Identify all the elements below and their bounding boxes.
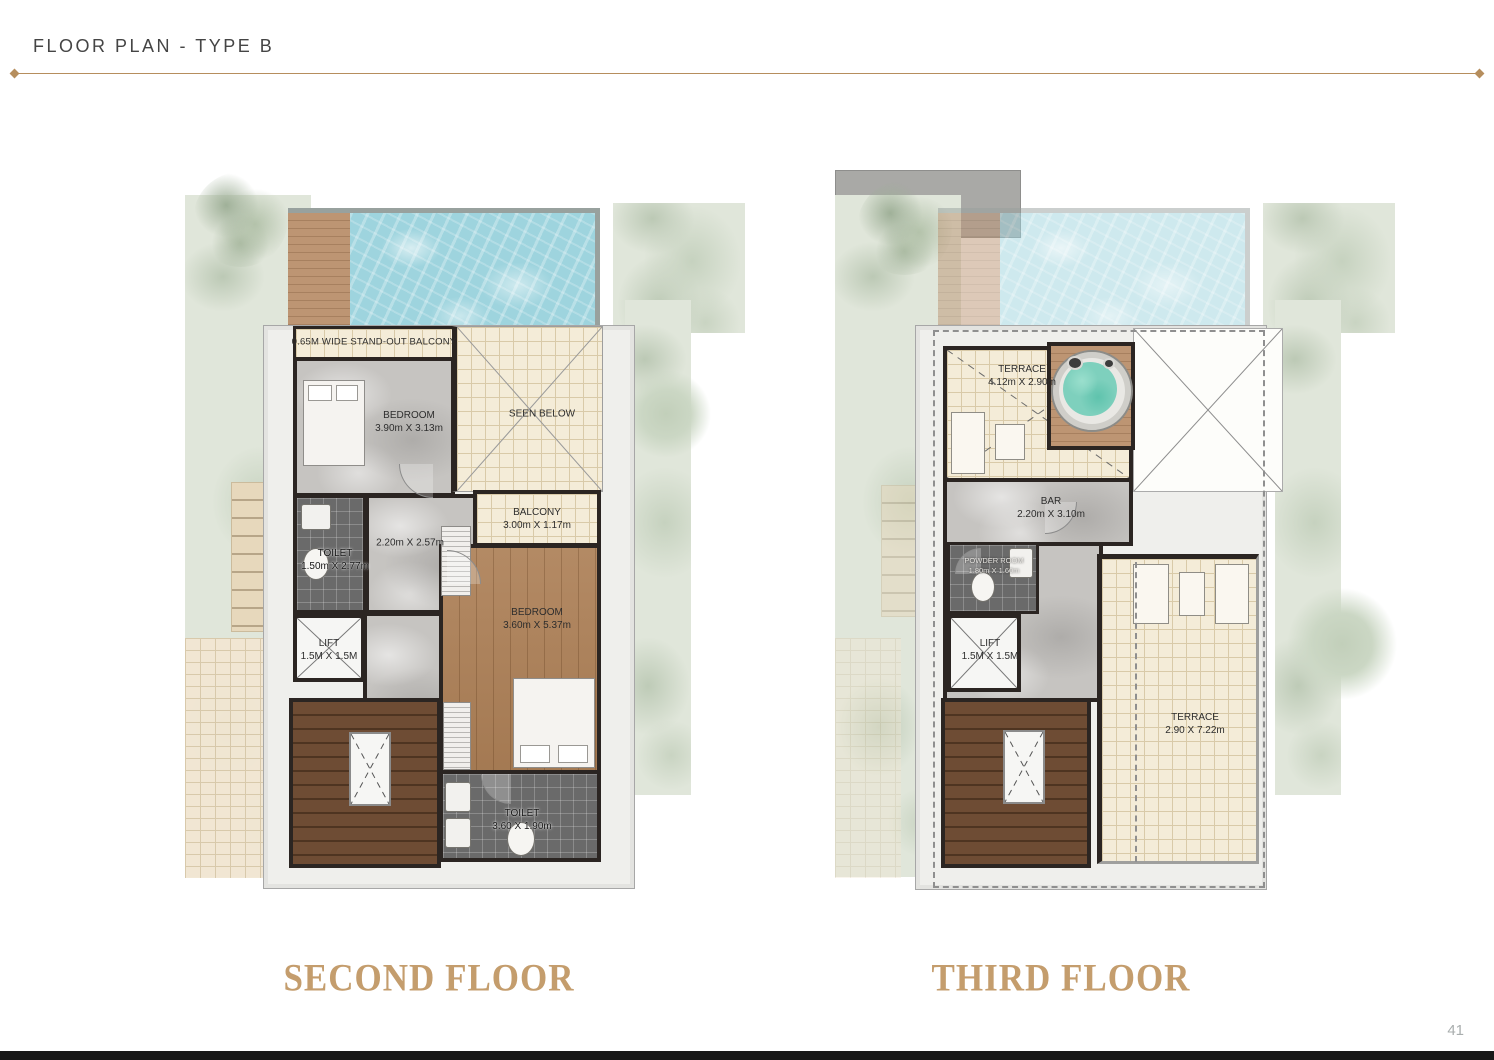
- paved-yard: [835, 638, 901, 878]
- swimming-pool: [1000, 208, 1250, 330]
- room-label: 2.20m X 2.57m: [376, 536, 444, 549]
- pool-deck: [288, 208, 350, 330]
- second-floor-plan: 0.65M WIDE STAND-OUT BALCONY BEDROOM 3.9…: [185, 170, 745, 905]
- third-floor-caption: THIRD FLOOR: [835, 956, 1287, 1001]
- room-label: TERRACE 2.90 X 7.22m: [1165, 711, 1224, 737]
- room-label: BAR 2.20m X 3.10m: [1017, 495, 1085, 521]
- bed: [303, 380, 365, 466]
- page-title: FLOOR PLAN - TYPE B: [33, 36, 274, 57]
- diamond-endpoint-icon: [1475, 69, 1485, 79]
- sink-icon: [445, 818, 471, 848]
- pool-deck: [938, 208, 1000, 330]
- closet: [443, 702, 471, 770]
- room-label: TERRACE 4.12m X 2.90m: [988, 363, 1056, 389]
- room-label: LIFT 1.5M X 1.5M: [962, 637, 1019, 663]
- room-label: BEDROOM 3.90m X 3.13m: [375, 409, 443, 435]
- gold-divider: [14, 73, 1480, 74]
- bed: [513, 678, 595, 768]
- room-label: BEDROOM 3.60m X 5.37m: [503, 606, 571, 632]
- second-floor-caption: SECOND FLOOR: [185, 956, 673, 1001]
- tree-icon: [1287, 588, 1397, 700]
- dashed-line: [1135, 562, 1137, 862]
- room-label: SEEN BELOW: [509, 407, 575, 420]
- stair-landing: [349, 732, 391, 806]
- dashed-outline: [933, 330, 1265, 888]
- diamond-endpoint-icon: [10, 69, 20, 79]
- cross-lines-icon: [351, 734, 389, 804]
- sink-icon: [301, 504, 331, 530]
- room-label: TOILET 3.60 X 1.90m: [492, 807, 551, 833]
- sink-icon: [445, 782, 471, 812]
- swimming-pool: [350, 208, 600, 330]
- greenery-right: [1275, 300, 1341, 795]
- room-label: LIFT 1.5M X 1.5M: [301, 637, 358, 663]
- third-floor-plan: TERRACE 4.12m X 2.90m BAR 2.20m X 3.10m …: [835, 170, 1395, 905]
- room-label: 0.65M WIDE STAND-OUT BALCONY: [292, 337, 457, 350]
- palm-tree-icon: [193, 172, 288, 267]
- room-label: POWDER ROOM 1.80m X 1.60m: [964, 556, 1023, 576]
- page-number: 41: [1447, 1022, 1464, 1039]
- room-label: TOILET 1.50m X 2.77m: [301, 547, 369, 573]
- room-label: BALCONY 3.00m X 1.17m: [503, 506, 571, 532]
- footer-bar: [0, 1051, 1494, 1060]
- brochure-page: FLOOR PLAN - TYPE B: [0, 0, 1494, 1060]
